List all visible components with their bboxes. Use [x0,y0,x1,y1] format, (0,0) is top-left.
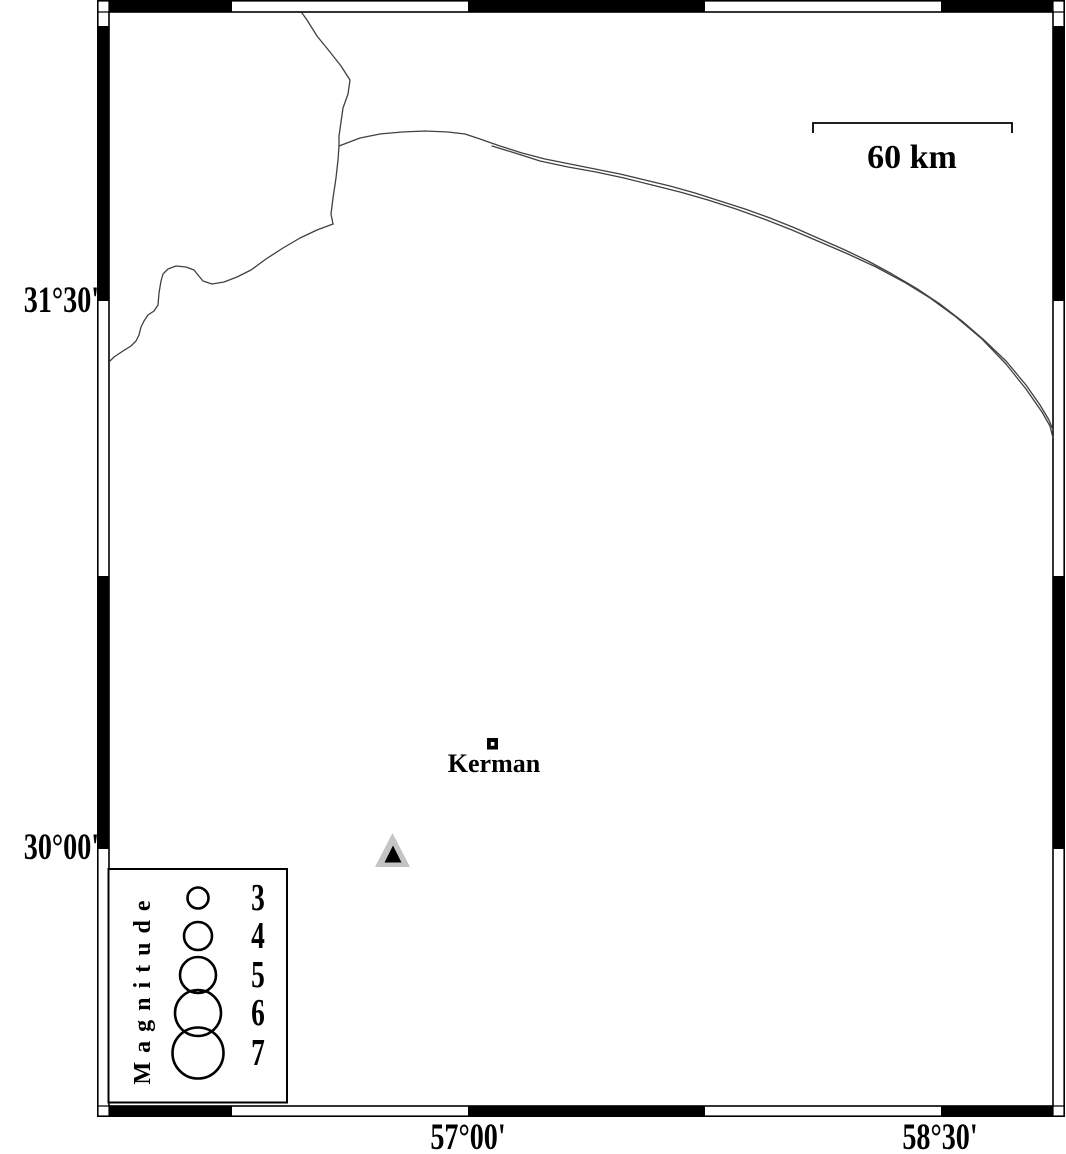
lat-label-31-30: 31°30' [0,279,86,323]
lon-label-57-00-text: 57°00' [430,1116,505,1154]
city-marker-kerman [487,738,498,750]
scale-bar-label: 60 km [867,141,957,175]
lon-label-58-30-text: 58°30' [902,1116,977,1154]
frame-top-band [109,1,1053,12]
map-figure: 31°30' 30°00' 57°00' 58°30' 60 km Kerman… [0,0,1066,1154]
lat-label-31-30-text: 31°30' [24,279,99,323]
legend-value-7: 7 [249,1031,268,1075]
legend-value-4: 4 [249,914,268,958]
legend-value-6: 6 [249,991,268,1035]
boundary-lines [110,13,1053,438]
frame-right-band [1053,26,1065,849]
boundary-line-southwest [110,224,333,361]
legend-value-4-text: 4 [251,914,265,958]
lon-label-57-00: 57°00' [418,1116,517,1154]
city-square-inner [491,742,495,746]
lon-label-58-30: 58°30' [890,1116,989,1154]
legend-title: Magnitude [131,891,155,1084]
station-triangle-marker [375,833,410,867]
scale-bar [813,123,1012,133]
legend-value-6-text: 6 [251,991,265,1035]
boundary-line-north [302,13,350,224]
city-label-kerman: Kerman [448,751,540,777]
lat-label-30-00-text: 30°00' [24,826,99,870]
boundary-line-east-lower [492,146,1053,438]
legend-value-7-text: 7 [251,1031,265,1075]
frame-left-band [97,26,109,849]
lat-label-30-00: 30°00' [0,826,86,870]
